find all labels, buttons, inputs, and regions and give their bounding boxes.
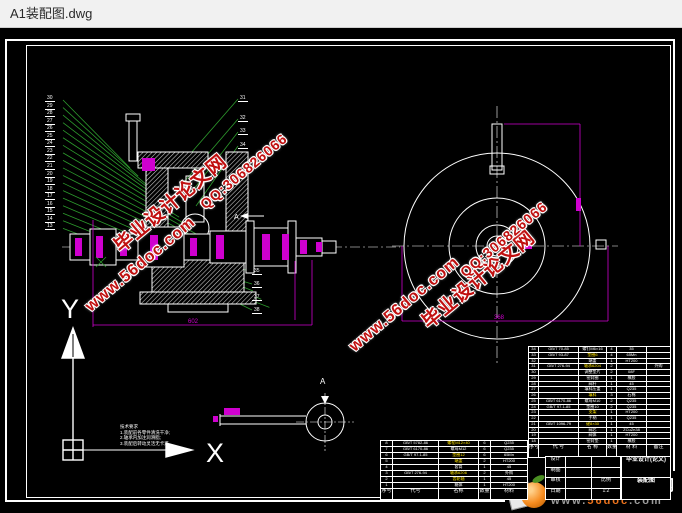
table-cell: 2 [381, 477, 393, 482]
table-cell: 垫圈6 [579, 353, 607, 358]
table-cell [647, 370, 670, 375]
table-cell: 填料 [579, 393, 607, 398]
table-cell: 2 [479, 459, 491, 464]
table-cell: ZCuZn38 [617, 428, 647, 433]
table-cell [617, 364, 647, 369]
table-cell: GB/T 276-94 [393, 471, 439, 476]
table-cell [539, 416, 579, 421]
table-cell: 45 [617, 422, 647, 427]
part-callout: 21 [45, 163, 55, 170]
table-cell [539, 370, 579, 375]
table-cell: 轴承6204 [579, 364, 607, 369]
table-cell: Q235 [617, 405, 647, 410]
axis-x-label: X [206, 438, 224, 468]
table-cell: 1 [607, 410, 617, 415]
table-cell: 08F [617, 370, 647, 375]
table-cell: 45 [491, 477, 527, 482]
table-cell: 7 [381, 447, 393, 452]
table-row: 设计 [546, 457, 620, 468]
table-cell: 螺栓M12×40 [439, 441, 479, 446]
part-callout: 25 [45, 133, 55, 140]
table-cell [647, 433, 670, 438]
part-callout: 27 [45, 118, 55, 125]
part-callout: 31 [238, 95, 248, 102]
dim-front-width: 368 [494, 315, 505, 321]
table-cell: 端盖 [579, 359, 607, 364]
table-cell [647, 410, 670, 415]
table-cell: 32 [529, 359, 539, 364]
table-cell: 1 [607, 387, 617, 392]
table-row: 审核比例 [546, 478, 620, 489]
table-cell: 齿轮轴 [439, 477, 479, 482]
part-callout: 37 [252, 294, 262, 301]
table-cell: GB/T 1096-79 [539, 422, 579, 427]
table-cell: 45 [617, 382, 647, 387]
table-cell: 橡胶 [617, 376, 647, 381]
table-cell: 名称 [439, 489, 479, 499]
axis-y-label: Y [61, 294, 79, 324]
table-cell [647, 393, 670, 398]
table-cell: 23 [529, 410, 539, 415]
table-cell: GB/T 6170-86 [393, 447, 439, 452]
table-cell: GB/T 70-85 [539, 347, 579, 352]
leader-line [63, 115, 146, 184]
file-title: A1装配图.dwg [10, 6, 92, 21]
table-cell: 2 [607, 364, 617, 369]
table-cell: 65Mn [491, 453, 527, 458]
table-cell: Q235 [491, 441, 527, 446]
bom-table: 序号代号名称数量材料 [380, 488, 528, 500]
table-cell: 1 [607, 428, 617, 433]
table-cell: 6 [381, 453, 393, 458]
part-callout: 30 [45, 95, 55, 102]
table-cell: 28 [529, 382, 539, 387]
table-cell: Q235 [491, 447, 527, 452]
table-cell: 65Mn [617, 353, 647, 358]
table-cell [539, 359, 579, 364]
table-cell: 35 [617, 347, 647, 352]
table-cell: 33 [529, 353, 539, 358]
table-cell [393, 477, 439, 482]
table-cell: 1 [607, 422, 617, 427]
table-cell: 填料压盖 [579, 387, 607, 392]
part-callout: 20 [45, 171, 55, 178]
part-callout: 16 [45, 201, 55, 208]
table-cell: 22 [529, 416, 539, 421]
table-cell: 垫圈12 [439, 453, 479, 458]
table-cell [647, 405, 670, 410]
table-cell: 1 [607, 382, 617, 387]
table-cell: 4 [381, 465, 393, 470]
table-cell: 套筒 [439, 465, 479, 470]
table-cell: 1 [479, 477, 491, 482]
table-cell [539, 393, 579, 398]
table-cell: 3 [381, 471, 393, 476]
table-cell: 石棉 [617, 393, 647, 398]
table-cell: 比例 [592, 478, 620, 488]
table-cell: 阀杆 [579, 382, 607, 387]
table-cell: HT200 [617, 359, 647, 364]
table-cell: 27 [529, 387, 539, 392]
lever-dimensions [213, 408, 240, 422]
table-cell: 31 [529, 364, 539, 369]
table-cell [647, 416, 670, 421]
table-cell: 设计 [546, 457, 566, 467]
table-cell: 21 [529, 422, 539, 427]
part-callout: 13 [45, 223, 55, 230]
table-cell: 毕业设计(论文) [622, 457, 670, 477]
table-cell [539, 410, 579, 415]
part-callout: 35 [252, 268, 262, 275]
table-cell: 6 [479, 447, 491, 452]
detail-view-label: A [320, 377, 326, 386]
table-cell [539, 382, 579, 387]
table-cell: 代号 [393, 489, 439, 499]
part-callout: 23 [45, 148, 55, 155]
table-cell: 24 [529, 405, 539, 410]
table-cell: 19 [529, 433, 539, 438]
table-cell [393, 465, 439, 470]
table-cell: HT200 [617, 433, 647, 438]
part-callout: 26 [45, 125, 55, 132]
table-cell [393, 459, 439, 464]
table-cell: 日期 [546, 489, 566, 500]
table-cell [539, 376, 579, 381]
table-cell: 外购 [491, 471, 527, 476]
part-callout: 28 [45, 110, 55, 117]
table-cell: 4 [607, 353, 617, 358]
table-cell: 支架 [579, 410, 607, 415]
part-callout: 34 [238, 142, 248, 149]
table-cell: 阀芯 [579, 428, 607, 433]
table-cell: 键8×30 [579, 422, 607, 427]
table-cell: 螺钉M6×16 [579, 347, 607, 352]
table-cell: 25 [529, 399, 539, 404]
table-cell: 2 [607, 399, 617, 404]
table-cell [539, 428, 579, 433]
table-cell: 轴承6206 [439, 471, 479, 476]
table-cell: 手柄 [579, 416, 607, 421]
table-cell: GB/T 6170-86 [539, 399, 579, 404]
bom-table: 8GB/T 5782-86螺栓M12×406Q2357GB/T 6170-86螺… [380, 440, 528, 490]
table-cell: GB/T 93-87 [539, 353, 579, 358]
window-titlebar: A1装配图.dwg [0, 0, 682, 28]
table-cell: 1 [607, 433, 617, 438]
table-cell: 垫圈10 [579, 405, 607, 410]
lever-detail-view [220, 393, 354, 451]
bom-table: 34GB/T 70-85螺钉M6×1643533GB/T 93-87垫圈6465… [528, 346, 671, 446]
table-cell: HT200 [617, 410, 647, 415]
table-cell: 制图 [546, 468, 566, 478]
table-cell [566, 457, 592, 467]
bom-table: 毕业设计(论文)装配图 [621, 456, 671, 500]
table-cell: GB/T 97.1-85 [393, 453, 439, 458]
app-window: A1装配图.dwg [0, 0, 682, 513]
table-cell: 2 [607, 405, 617, 410]
dim-main-width: 602 [188, 319, 199, 325]
part-callout: 17 [45, 193, 55, 200]
table-row: 序号代号名称数量材料 [381, 489, 527, 499]
table-cell [539, 387, 579, 392]
table-cell: 3 [607, 393, 617, 398]
table-cell: 45 [491, 465, 527, 470]
table-cell [647, 422, 670, 427]
table-cell: 螺母M12 [439, 447, 479, 452]
table-cell: 序号 [381, 489, 393, 499]
table-cell: 1 [607, 376, 617, 381]
cad-canvas[interactable]: 602 A 368 [0, 28, 682, 513]
table-cell: 2 [479, 471, 491, 476]
table-cell: 5 [381, 459, 393, 464]
table-cell [647, 347, 670, 352]
table-cell: 密封圈 [579, 376, 607, 381]
table-cell [647, 359, 670, 364]
table-cell [592, 457, 620, 467]
table-cell: 6 [479, 441, 491, 446]
table-cell: 2 [607, 370, 617, 375]
table-cell: Q235 [617, 416, 647, 421]
part-callout: 38 [252, 307, 262, 314]
table-cell: Q235 [617, 387, 647, 392]
table-cell: 装配图 [622, 478, 670, 499]
table-cell: GB/T 5782-86 [393, 441, 439, 446]
table-row: 毕业设计(论文) [622, 457, 670, 478]
table-cell: 26 [529, 393, 539, 398]
technical-notes: 技术要求 1.装配前各零件清洗干净; 2.轴承内加注润滑脂; 3.装配后转动灵活… [120, 424, 170, 446]
table-cell: 29 [529, 376, 539, 381]
table-cell: 阀体 [579, 433, 607, 438]
table-cell [566, 468, 592, 478]
table-cell [647, 428, 670, 433]
table-cell [566, 489, 592, 500]
table-cell: 8 [381, 441, 393, 446]
table-row: 装配图 [622, 478, 670, 499]
table-cell [647, 399, 670, 404]
table-cell [566, 478, 592, 488]
table-cell: 材料 [491, 489, 527, 499]
table-cell: 1 [479, 465, 491, 470]
leader-line [63, 100, 130, 168]
part-callout: 33 [238, 128, 248, 135]
part-callout: 14 [45, 216, 55, 223]
table-cell [539, 433, 579, 438]
table-cell: 1 [607, 359, 617, 364]
table-cell: 螺母M10 [579, 399, 607, 404]
note-line: 3.装配后转动灵活无卡滞 [120, 441, 170, 447]
table-cell [592, 468, 620, 478]
part-callout: 19 [45, 178, 55, 185]
bom-table: 设计制图审核比例日期1:2 [545, 456, 621, 500]
table-cell: 6 [479, 453, 491, 458]
table-cell: GB/T 276-94 [539, 364, 579, 369]
table-cell: 1:2 [592, 489, 620, 500]
table-row: 日期1:2 [546, 489, 620, 500]
table-cell: 34 [529, 347, 539, 352]
table-cell [647, 376, 670, 381]
part-callout: 22 [45, 155, 55, 162]
table-cell: GB/T 97.1-85 [539, 405, 579, 410]
table-cell: 1 [607, 416, 617, 421]
table-cell: 审核 [546, 478, 566, 488]
leader-line [63, 108, 138, 177]
part-callout: 32 [238, 115, 248, 122]
table-cell [647, 382, 670, 387]
table-cell: HT200 [491, 459, 527, 464]
part-callout: 24 [45, 140, 55, 147]
table-cell [647, 387, 670, 392]
table-row: 制图 [546, 468, 620, 479]
table-cell: 调整垫片 [579, 370, 607, 375]
part-callout: 15 [45, 208, 55, 215]
part-callout: 36 [252, 281, 262, 288]
section-arrow-label: A [234, 214, 239, 221]
table-cell: 端盖 [439, 459, 479, 464]
table-cell [647, 353, 670, 358]
table-cell: Q235 [617, 399, 647, 404]
table-cell: 30 [529, 370, 539, 375]
table-cell: 4 [607, 347, 617, 352]
part-callout: 29 [45, 103, 55, 110]
table-cell: 20 [529, 428, 539, 433]
table-cell: 序号 [529, 445, 539, 457]
table-cell: 数量 [479, 489, 491, 499]
table-cell: 外购 [647, 364, 670, 369]
part-callout: 18 [45, 186, 55, 193]
